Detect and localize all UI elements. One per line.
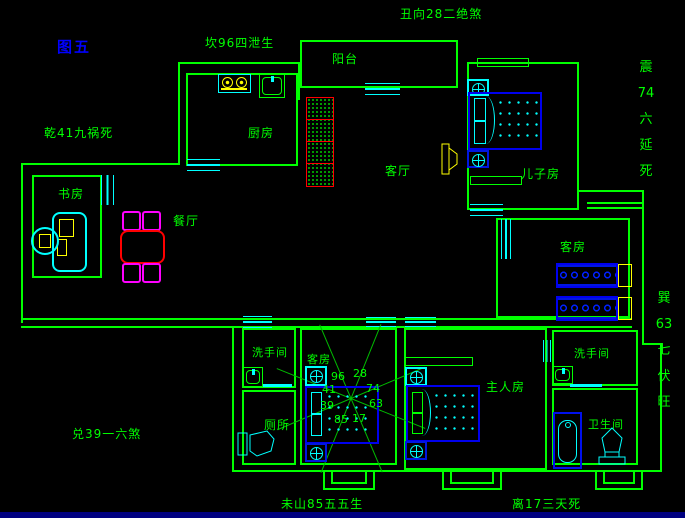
label-master-room: 主人房: [486, 378, 525, 395]
nightstand: [305, 443, 327, 462]
label-toilet: 厕所: [264, 416, 290, 433]
entry-step: [603, 472, 635, 484]
annotation-chou: 丑向28二绝煞: [400, 5, 482, 22]
pillow: [474, 121, 486, 144]
label-balcony: 阳台: [332, 50, 358, 67]
lamp-icon: [310, 447, 323, 460]
label-kitchen: 厨房: [248, 124, 274, 141]
annotation-li: 离17三天死: [512, 495, 581, 512]
bed: [468, 92, 542, 150]
annotation-line: 死: [636, 159, 656, 185]
dining-chair: [142, 263, 161, 283]
bunk-bed: [556, 263, 618, 288]
desk-chair: [31, 227, 59, 255]
compass-number: 17: [352, 412, 366, 425]
compass-number: 85: [334, 413, 348, 426]
sliding-door: [101, 175, 114, 205]
wall: [579, 190, 644, 192]
nightstand: [405, 441, 427, 460]
annotation-wei: 未山85五五生: [281, 495, 363, 512]
dining-chair: [142, 211, 161, 231]
label-bathroom: 卫生间: [588, 416, 624, 432]
pillow: [311, 414, 322, 436]
mattress-pattern: [432, 390, 476, 435]
blanket-line: [486, 96, 495, 144]
annotation-zhen: 震 74 六 延 死: [636, 55, 656, 185]
window: [187, 159, 220, 171]
annotation-kan: 坎96四泄生: [205, 34, 274, 51]
sink-icon: [552, 366, 573, 384]
lamp-icon: [472, 154, 485, 167]
bottom-edge-bar: [0, 512, 685, 518]
compass-number: 96: [331, 370, 345, 383]
label-guest-room-east: 客房: [560, 238, 586, 255]
monitor-icon: [59, 219, 74, 237]
bunk-bed: [556, 296, 618, 321]
label-washroom-east: 洗手间: [574, 345, 610, 361]
entry-step: [450, 472, 494, 484]
annotation-line: 63: [654, 312, 674, 338]
annotation-line: 七: [654, 338, 674, 364]
plant-box: [306, 97, 334, 187]
bathtub-icon: [553, 412, 582, 469]
annotation-line: 六: [636, 107, 656, 133]
ledge: [587, 207, 642, 209]
annotation-xun: 巽 63 七 伏 旺: [654, 286, 674, 416]
entry-step: [331, 472, 367, 484]
mattress-pattern: [496, 97, 538, 143]
window: [501, 219, 511, 259]
label-son-room: 儿子房: [521, 165, 560, 182]
label-guest-room-center: 客房: [307, 351, 331, 367]
compass-number: 39: [320, 399, 334, 412]
wall: [178, 62, 180, 165]
floorplan-canvas: 96 28 41 74 39 63 85 17 图五 丑向28二绝煞 坎96四泄…: [0, 0, 685, 518]
figure-label: 图五: [57, 36, 91, 57]
compass-number: 41: [322, 383, 336, 396]
label-study: 书房: [58, 185, 84, 202]
dining-table: [120, 230, 165, 264]
pillow: [618, 264, 632, 287]
sink-icon: [243, 367, 263, 387]
annotation-line: 伏: [654, 364, 674, 390]
annotation-line: 震: [636, 55, 656, 81]
lamp-icon: [410, 371, 423, 384]
compass-number: 63: [369, 397, 383, 410]
pillow: [618, 297, 632, 320]
wall: [178, 62, 300, 64]
window: [470, 204, 503, 216]
lamp-icon: [410, 445, 423, 458]
ledge: [587, 202, 642, 204]
bed: [406, 385, 480, 442]
toilet-icon: [237, 429, 277, 459]
annotation-line: 旺: [654, 390, 674, 416]
pillow: [474, 98, 486, 121]
nightstand: [405, 367, 427, 386]
window: [243, 316, 272, 328]
label-living-room: 客厅: [385, 162, 411, 179]
window-shelf: [477, 58, 529, 67]
shelf: [470, 176, 522, 185]
wall: [21, 163, 23, 323]
lamp-icon: [310, 370, 323, 383]
label-washroom-west: 洗手间: [252, 344, 288, 360]
window: [405, 317, 436, 327]
door: [262, 384, 292, 387]
dining-chair: [122, 211, 141, 231]
wall: [21, 163, 180, 165]
wall-outer: [642, 190, 644, 345]
door: [570, 384, 602, 387]
room-balcony-outline: [300, 40, 458, 88]
wall-corridor: [21, 318, 632, 320]
sink-icon: [259, 74, 285, 98]
shelf: [405, 357, 473, 366]
annotation-line: 延: [636, 133, 656, 159]
compass-number: 28: [353, 367, 367, 380]
annotation-dui: 兑39一六煞: [72, 425, 141, 442]
blanket-line: [422, 389, 431, 436]
wall: [232, 328, 234, 472]
window: [543, 340, 551, 362]
nightstand: [467, 150, 489, 168]
window: [365, 83, 400, 95]
stove-icon: [218, 74, 251, 93]
annotation-line: 巽: [654, 286, 674, 312]
compass-number: 74: [366, 382, 380, 395]
dining-chair: [122, 263, 141, 283]
annotation-qian: 乾41九祸死: [44, 124, 113, 141]
annotation-line: 74: [636, 81, 656, 107]
toilet-icon: [596, 426, 628, 468]
speaker-icon: [440, 143, 460, 175]
label-dining: 餐厅: [173, 212, 199, 229]
